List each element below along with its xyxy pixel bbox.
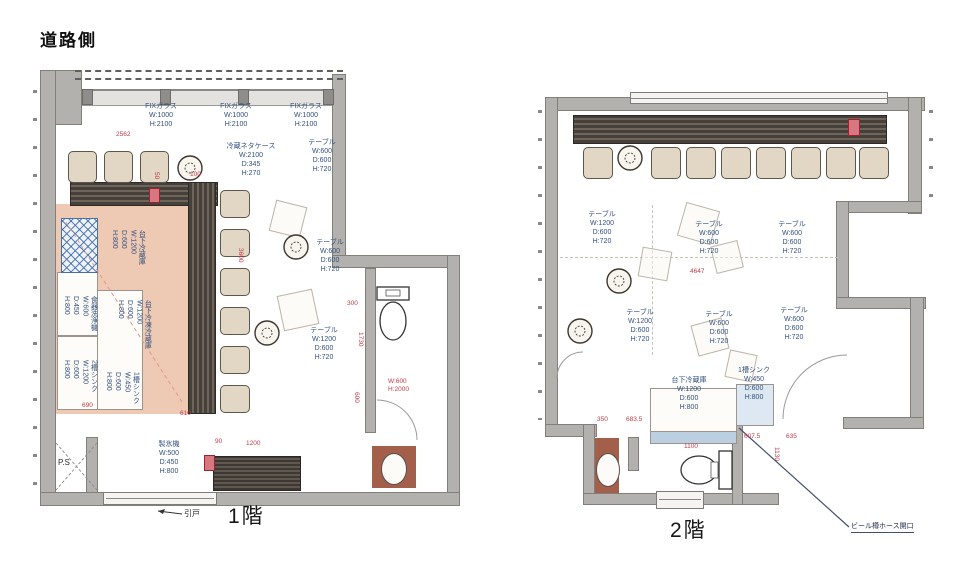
under-fridge-label: 台下冷蔵庫 W:1200 D:600 H:800 — [658, 376, 720, 412]
table-label: テーブル W:600 D:600 H:720 — [298, 138, 346, 174]
chair-icon — [618, 146, 642, 170]
door-dimension: W:600 H:2000 — [388, 378, 409, 394]
pipe-space-label: P.S — [58, 458, 70, 467]
table-label: テーブル W:1200 D:600 H:720 — [574, 210, 630, 246]
dimension: 350 — [597, 416, 608, 424]
door-arc — [783, 355, 847, 419]
fix-glass-label: FIXガラス W:1000 H:2100 — [135, 102, 187, 129]
dishwasher-label: 食器洗浄機 W:600 D:450 H:800 — [62, 296, 98, 362]
door-arc — [557, 352, 583, 378]
toilet-icon — [681, 451, 732, 489]
table-label: テーブル W:600 D:600 H:720 — [306, 238, 354, 274]
fix-glass-label: FIXガラス W:1000 H:2100 — [280, 102, 332, 129]
dimension: 600 — [352, 392, 360, 403]
table-label: テーブル W:600 D:600 H:720 — [684, 220, 734, 256]
sink2-label: 2槽シンク W:1200 D:600 H:800 — [62, 360, 98, 420]
sliding-door-arrow — [158, 509, 182, 514]
floorplan-canvas: 道路側 FIXガラス W:1000 H:2100 FIXガラ — [0, 0, 974, 582]
fix-glass-label: FIXガラス W:1000 H:2100 — [210, 102, 262, 129]
dimension: 607.5 — [744, 433, 760, 441]
sliding-door-label: 引戸 — [184, 508, 200, 519]
dimension: 1730 — [356, 332, 364, 346]
chair-icon — [255, 321, 279, 345]
sink1-label: 1槽シンク W:450 D:600 H:800 — [728, 366, 780, 402]
table-label: テーブル W:600 D:600 H:720 — [694, 310, 744, 346]
chair-icon — [568, 319, 592, 343]
table-label: テーブル W:1200 D:600 H:720 — [612, 308, 668, 344]
dimension: 4647 — [690, 268, 704, 276]
under-fridge-label: 台下冷蔵庫 W:1200 D:600 H:800 — [110, 230, 146, 300]
dimension: 100 — [190, 171, 201, 179]
toilet-icon — [377, 287, 409, 340]
dimension: 683.5 — [626, 416, 642, 424]
dimension: 610 — [180, 410, 191, 418]
dimension: 50 — [152, 172, 160, 179]
neta-case-label: 冷蔵ネタケース W:2100 D:345 H:270 — [212, 142, 290, 178]
road-side-label: 道路側 — [40, 26, 97, 51]
door-arc — [377, 400, 417, 440]
dimension: 3600 — [236, 248, 244, 262]
dimension: 690 — [82, 402, 93, 410]
sink1-label: 1槽シンク W:450 D:600 H:800 — [104, 372, 140, 424]
dimension: 635 — [786, 433, 797, 441]
dimension: 1130 — [772, 447, 780, 461]
table-label: テーブル W:1200 D:600 H:720 — [296, 326, 352, 362]
dimension: 300 — [347, 300, 358, 308]
table-label: テーブル W:600 D:600 H:720 — [769, 306, 819, 342]
chair-icon — [607, 269, 631, 293]
table-label: テーブル W:600 D:600 H:720 — [767, 220, 817, 256]
dimension: 2562 — [116, 131, 130, 139]
dimension: 1200 — [246, 440, 260, 448]
floor1-title: 1階 — [228, 500, 265, 530]
callout-leader-line — [739, 428, 849, 527]
under-freezer-fridge-label: 台下冷凍冷蔵庫 W:1200 D:600 H:800 — [116, 300, 152, 372]
floor2-title: 2階 — [670, 514, 707, 544]
dimension: 90 — [215, 438, 222, 446]
beer-hose-opening-callout: ビール樽ホース開口 — [851, 521, 914, 533]
ice-maker-label: 製氷機 W:500 D:450 H:800 — [143, 440, 195, 476]
chair-icon — [284, 235, 308, 259]
dimension: 1100 — [684, 443, 698, 451]
